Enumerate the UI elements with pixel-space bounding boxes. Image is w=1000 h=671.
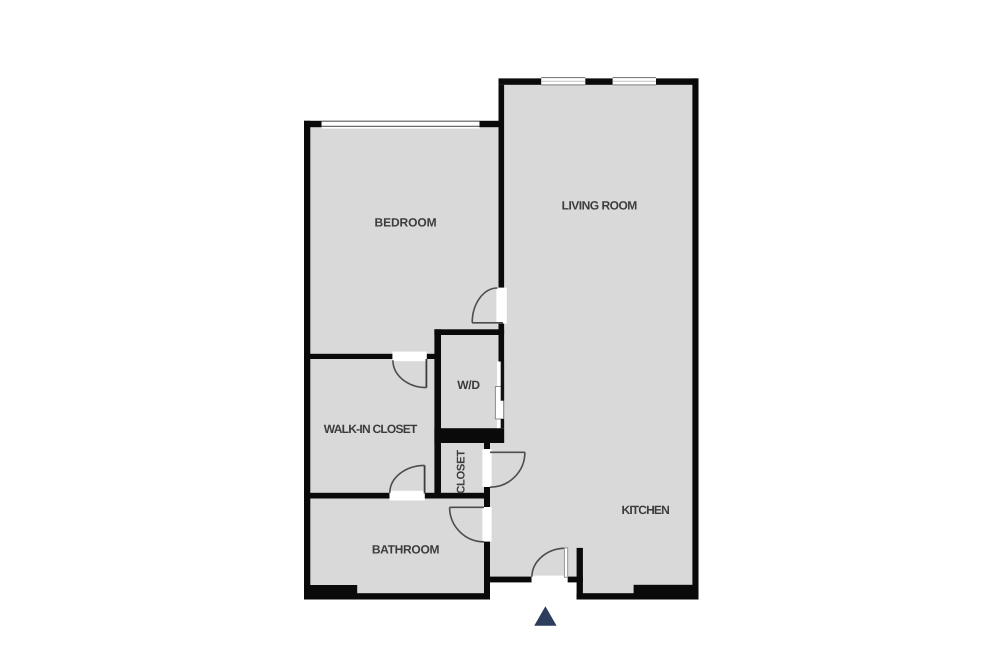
svg-text:W/D: W/D bbox=[457, 378, 480, 392]
svg-text:BATHROOM: BATHROOM bbox=[372, 543, 440, 557]
svg-text:LIVING ROOM: LIVING ROOM bbox=[562, 199, 638, 213]
svg-text:WALK-IN CLOSET: WALK-IN CLOSET bbox=[324, 422, 418, 436]
svg-text:CLOSET: CLOSET bbox=[456, 450, 468, 494]
svg-text:KITCHEN: KITCHEN bbox=[622, 503, 670, 517]
svg-text:BEDROOM: BEDROOM bbox=[375, 216, 437, 230]
